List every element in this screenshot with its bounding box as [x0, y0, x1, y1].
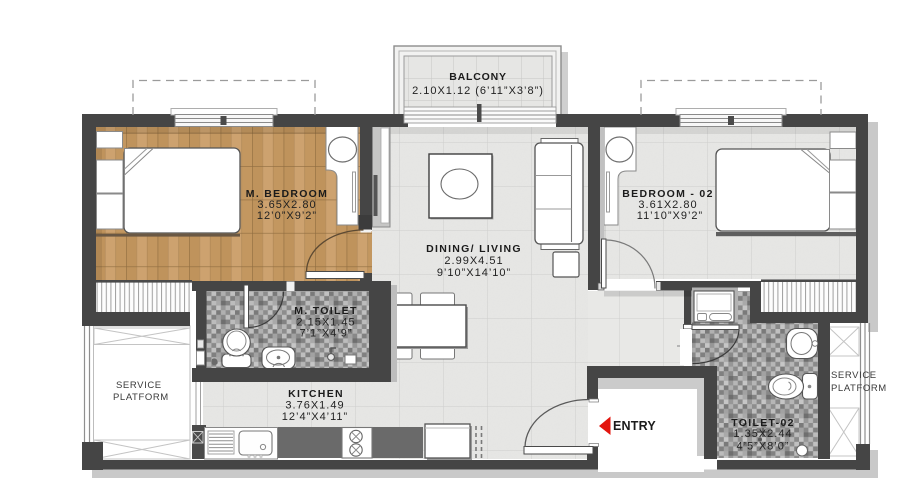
svg-text:PLATFORM: PLATFORM: [831, 383, 887, 394]
svg-text:11’10”X9’2”: 11’10”X9’2”: [637, 210, 703, 222]
svg-text:SERVICE: SERVICE: [116, 380, 162, 391]
svg-text:9’10”X14’10”: 9’10”X14’10”: [437, 267, 511, 279]
svg-text:4’5”X8’0”: 4’5”X8’0”: [736, 441, 789, 453]
svg-text:SERVICE: SERVICE: [831, 370, 877, 381]
svg-text:12’0”X9’2”: 12’0”X9’2”: [257, 210, 317, 222]
svg-text:2.99X4.51: 2.99X4.51: [444, 255, 503, 267]
svg-text:BALCONY: BALCONY: [449, 71, 507, 83]
svg-text:7’1”X4’9”: 7’1”X4’9”: [299, 328, 352, 340]
svg-text:2.10X1.12 (6’11”X3’8”): 2.10X1.12 (6’11”X3’8”): [412, 85, 544, 97]
svg-text:PLATFORM: PLATFORM: [113, 392, 169, 403]
svg-text:3.76X1.49: 3.76X1.49: [285, 400, 344, 412]
svg-text:ENTRY: ENTRY: [613, 419, 656, 433]
svg-text:KITCHEN: KITCHEN: [288, 388, 344, 400]
svg-text:M. TOILET: M. TOILET: [294, 305, 357, 317]
svg-text:DINING/ LIVING: DINING/ LIVING: [426, 243, 522, 255]
svg-text:12’4”X4’11”: 12’4”X4’11”: [282, 411, 348, 423]
svg-text:1.35X2.44: 1.35X2.44: [733, 428, 792, 440]
